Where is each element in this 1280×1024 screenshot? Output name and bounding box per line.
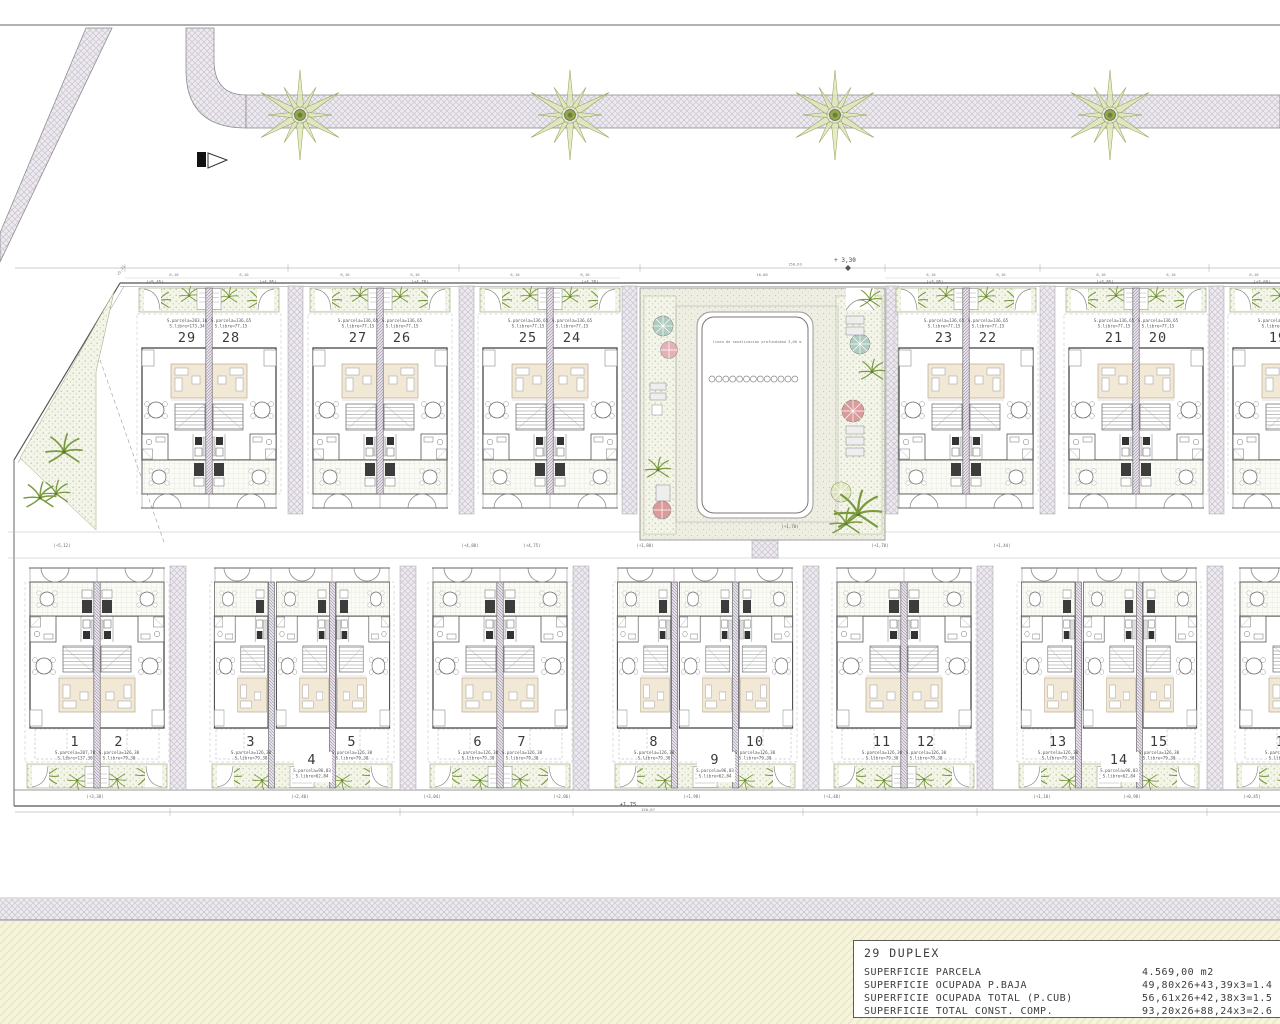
unit-number: 19 xyxy=(1269,330,1280,346)
unit-area-label: S.parcela=126,30 xyxy=(1139,750,1180,755)
duplex-block: S.parcela=136,65S.libre=77,1525S.parcela… xyxy=(478,286,622,508)
duplex-block: S.parcela=136,65S.libre=77,1521S.parcela… xyxy=(1064,286,1208,508)
unit-area-label: S.parcela=207,70 xyxy=(55,750,96,755)
sidewalk-curve xyxy=(186,28,246,128)
unit-number: 15 xyxy=(1150,734,1168,750)
dim-annotation: (+3,04) xyxy=(423,794,440,799)
unit-area-label: S.parcela=126,30 xyxy=(1038,750,1079,755)
unit-area-label: S.libre=62,84 xyxy=(1103,774,1136,779)
unit-area-label: S.libre=77,15 xyxy=(1262,324,1280,329)
unit-area-label: S.libre=77,15 xyxy=(556,324,589,329)
level-label-top: + 3,30 xyxy=(834,257,856,264)
unit-area-label: S.parcela=96,03 xyxy=(1100,768,1138,773)
unit-area-label: S.libre=77,15 xyxy=(1098,324,1131,329)
dim-annotation: (+1,44) xyxy=(993,543,1010,548)
unit-number: 26 xyxy=(393,330,411,346)
unit-area-label: S.parcela=96,03 xyxy=(696,768,734,773)
dim-annotation: (+1,48) xyxy=(823,794,840,799)
unit-number: 23 xyxy=(935,330,953,346)
unit-area-label: S.parcela=126,30 xyxy=(1265,750,1280,755)
unit-number: 5 xyxy=(347,734,356,750)
unit-area-label: S.libre=79,30 xyxy=(638,756,671,761)
unit-area-label: S.parcela=126,30 xyxy=(99,750,140,755)
tree-icon xyxy=(259,70,341,160)
tree-icon xyxy=(794,70,876,160)
title-block-title: 29 DUPLEX xyxy=(864,946,940,960)
unit-number: 7 xyxy=(517,734,526,750)
pool-water xyxy=(702,317,808,513)
duplex-block: 13S.parcela=126,30S.libre=79,3015S.parce… xyxy=(1017,568,1201,790)
unit-area-label: S.parcela=136,65 xyxy=(1094,318,1135,323)
superficie-label: SUPERFICIE OCUPADA TOTAL (P.CUB) xyxy=(864,993,1073,1004)
unit-area-label: S.parcela=126,30 xyxy=(332,750,373,755)
north-arrow-icon xyxy=(197,152,227,168)
unit-area-label: S.libre=62,84 xyxy=(296,774,329,779)
pool-depth-label: linea de senalizacion profundidad 3,00 m xyxy=(713,340,803,344)
dim-annotation: (+1,70) xyxy=(781,524,798,529)
unit-area-label: S.libre=77,15 xyxy=(972,324,1005,329)
unit-area-label: S.libre=79,30 xyxy=(462,756,495,761)
dim-annotation: (+2,06) xyxy=(553,794,570,799)
dim-annotation: 16,60 xyxy=(756,272,768,277)
unit-number: 21 xyxy=(1105,330,1123,346)
dim-annotation: (+1,98) xyxy=(683,794,700,799)
unit-area-label: S.parcela=126,30 xyxy=(634,750,675,755)
unit-area-label: S.libre=79,30 xyxy=(866,756,899,761)
unit-area-label: S.parcela=136,65 xyxy=(508,318,549,323)
unit-area-label: S.libre=173,34 xyxy=(169,324,205,329)
dim-annotation: 6,10 xyxy=(239,272,249,277)
unit-area-label: S.parcela=136,65 xyxy=(1138,318,1179,323)
dim-annotation: (+0,45) xyxy=(1243,794,1260,799)
unit-area-label: S.parcela=126,30 xyxy=(906,750,947,755)
corner-garden xyxy=(20,292,114,530)
duplex-block: 16S.parcela=126,30S.libre=79,3017S.parce… xyxy=(1235,568,1280,790)
unit-number: 28 xyxy=(222,330,240,346)
unit-area-label: S.parcela=126,30 xyxy=(735,750,776,755)
duplex-block: 3S.parcela=126,30S.libre=79,305S.parcela… xyxy=(210,568,394,790)
dim-annotation: (+4,88) xyxy=(461,543,478,548)
dim-annotation: (+4,75) xyxy=(523,543,540,548)
unit-area-label: S.libre=79,30 xyxy=(1269,756,1280,761)
unit-number: 20 xyxy=(1149,330,1167,346)
unit-number: 10 xyxy=(746,734,764,750)
level-label-bottom: +1,75 xyxy=(620,802,637,808)
unit-area-label: S.libre=77,15 xyxy=(342,324,375,329)
unit-number: 25 xyxy=(519,330,537,346)
dim-annotation: (+5,12) xyxy=(53,543,70,548)
unit-area-label: S.libre=77,15 xyxy=(512,324,545,329)
unit-area-label: S.parcela=126,30 xyxy=(231,750,272,755)
tree-icon xyxy=(529,70,611,160)
lower-sidewalk-band xyxy=(0,899,1280,920)
duplex-block: 6S.parcela=126,30S.libre=79,307S.parcela… xyxy=(428,568,572,790)
dim-annotation: (+3,60) xyxy=(1253,280,1270,285)
dim-annotation: 6,10 xyxy=(996,272,1006,277)
site-plan-page: linea de senalizacion profundidad 3,00 m xyxy=(0,0,1280,1024)
dim-value-top: 150,63 xyxy=(788,262,802,267)
dim-value-bottom: 150,67 xyxy=(641,807,655,812)
duplex-block: S.parcela=136,65S.libre=77,1523S.parcela… xyxy=(894,286,1038,508)
unit-area-label: S.libre=79,30 xyxy=(1042,756,1075,761)
unit-number: 6 xyxy=(473,734,482,750)
superficie-value: 56,61x26+42,38x3=1.5 xyxy=(1142,993,1272,1004)
unit-area-label: S.libre=79,30 xyxy=(910,756,943,761)
unit-area-label: S.parcela=136,65 xyxy=(552,318,593,323)
unit-area-label: S.parcela=126,30 xyxy=(862,750,903,755)
dim-annotation: (+2,40) xyxy=(291,794,308,799)
dim-annotation: (+1,70) xyxy=(871,543,888,548)
unit-number: 12 xyxy=(917,734,935,750)
duplex-block: 11S.parcela=126,30S.libre=79,3012S.parce… xyxy=(832,568,976,790)
unit-area-label: S.parcela=136,65 xyxy=(382,318,423,323)
superficie-value: 49,80x26+43,39x3=1.4 xyxy=(1142,980,1272,991)
dim-annotation: 6,10 xyxy=(410,272,420,277)
duplex-block: S.parcela=203,16S.libre=173,3429S.parcel… xyxy=(137,286,281,508)
dim-annotation: (+3,85) xyxy=(1096,280,1113,285)
unit-area-label: S.libre=79,30 xyxy=(1143,756,1176,761)
unit-area-label: S.parcela=136,65 xyxy=(924,318,965,323)
unit-number: 29 xyxy=(178,330,196,346)
duplex-block: S.parcela=136,65S.libre=77,1527S.parcela… xyxy=(308,286,452,508)
dim-annotation: 6,10 xyxy=(580,272,590,277)
unit-number: 13 xyxy=(1049,734,1067,750)
unit-area-label: S.parcela=136,65 xyxy=(338,318,379,323)
unit-area-label: S.libre=77,15 xyxy=(215,324,248,329)
unit-area-label: S.parcela=136,65 xyxy=(211,318,252,323)
unit-area-label: S.libre=77,15 xyxy=(1142,324,1175,329)
duplex-block: 1S.parcela=207,70S.libre=137,302S.parcel… xyxy=(25,568,169,790)
unit-area-label: S.libre=62,84 xyxy=(699,774,732,779)
unit-number: 2 xyxy=(114,734,123,750)
dim-annotation: (+4,70) xyxy=(581,280,598,285)
dim-annotation: (+3,95) xyxy=(926,280,943,285)
unit-area-label: S.parcela=126,30 xyxy=(502,750,543,755)
tree-icon xyxy=(1069,70,1151,160)
dim-annotation: 6,10 xyxy=(169,272,179,277)
unit-area-label: S.parcela=203,16 xyxy=(167,318,208,323)
bottom-row-duplexes: 1S.parcela=207,70S.libre=137,302S.parcel… xyxy=(25,568,1280,790)
dim-annotation: 6,10 xyxy=(510,272,520,277)
dim-annotation: (+1,18) xyxy=(1033,794,1050,799)
unit-number: 14 xyxy=(1110,752,1128,768)
dim-annotation: (+1,80) xyxy=(636,543,653,548)
level-label-left: +5,21 xyxy=(116,263,127,276)
unit-area-label: S.libre=77,15 xyxy=(928,324,961,329)
duplex-block: 8S.parcela=126,30S.libre=79,3010S.parcel… xyxy=(613,568,797,790)
unit-number: 16 xyxy=(1276,734,1280,750)
pool-courtyard: linea de senalizacion profundidad 3,00 m xyxy=(640,288,885,540)
unit-number: 8 xyxy=(649,734,658,750)
unit-area-label: S.parcela=126,30 xyxy=(458,750,499,755)
unit-area-label: S.libre=137,30 xyxy=(57,756,93,761)
dim-annotation: (+0,98) xyxy=(1123,794,1140,799)
unit-number: 11 xyxy=(873,734,891,750)
superficie-label: SUPERFICIE TOTAL CONST. COMP. xyxy=(864,1006,1053,1017)
unit-area-label: S.parcela=136,65 xyxy=(968,318,1009,323)
dim-annotation: 6,10 xyxy=(1096,272,1106,277)
street-top xyxy=(0,25,1280,262)
unit-area-label: S.libre=79,30 xyxy=(235,756,268,761)
unit-number: 9 xyxy=(710,752,719,768)
unit-number: 3 xyxy=(246,734,255,750)
unit-number: 24 xyxy=(563,330,581,346)
unit-area-label: S.libre=77,15 xyxy=(386,324,419,329)
dim-annotation: 6,10 xyxy=(340,272,350,277)
duplex-block: S.parcela=136,65S.libre=77,1519S.parcela… xyxy=(1228,286,1280,508)
site-plan-drawing: linea de senalizacion profundidad 3,00 m xyxy=(0,0,1280,1024)
unit-area-label: S.parcela=136,65 xyxy=(1258,318,1280,323)
unit-number: 27 xyxy=(349,330,367,346)
title-block: 29 DUPLEX SUPERFICIE PARCELA 4.569,00 m2… xyxy=(853,940,1280,1018)
unit-area-label: S.libre=79,30 xyxy=(336,756,369,761)
unit-area-label: S.libre=79,30 xyxy=(739,756,772,761)
unit-area-label: S.libre=79,30 xyxy=(103,756,136,761)
dim-annotation: (+5,45) xyxy=(146,280,163,285)
superficie-value: 93,20x26+88,24x3=2.6 xyxy=(1142,1006,1272,1017)
dim-annotation: 6,10 xyxy=(1166,272,1176,277)
superficie-label: SUPERFICIE PARCELA xyxy=(864,967,981,978)
superficie-label: SUPERFICIE OCUPADA P.BAJA xyxy=(864,980,1027,991)
dim-annotation: 6,10 xyxy=(926,272,936,277)
diagonal-sidewalk xyxy=(0,28,112,262)
superficie-value: 4.569,00 m2 xyxy=(1142,967,1214,978)
unit-area-label: S.parcela=96,03 xyxy=(293,768,331,773)
unit-number: 1 xyxy=(70,734,79,750)
unit-number: 22 xyxy=(979,330,997,346)
unit-number: 4 xyxy=(307,752,316,768)
dim-annotation: (+4,85) xyxy=(259,280,276,285)
dim-annotation: (+3,38) xyxy=(86,794,103,799)
dim-annotation: 6,10 xyxy=(1249,272,1259,277)
unit-area-label: S.libre=79,30 xyxy=(506,756,539,761)
dim-annotation: (+4,78) xyxy=(411,280,428,285)
